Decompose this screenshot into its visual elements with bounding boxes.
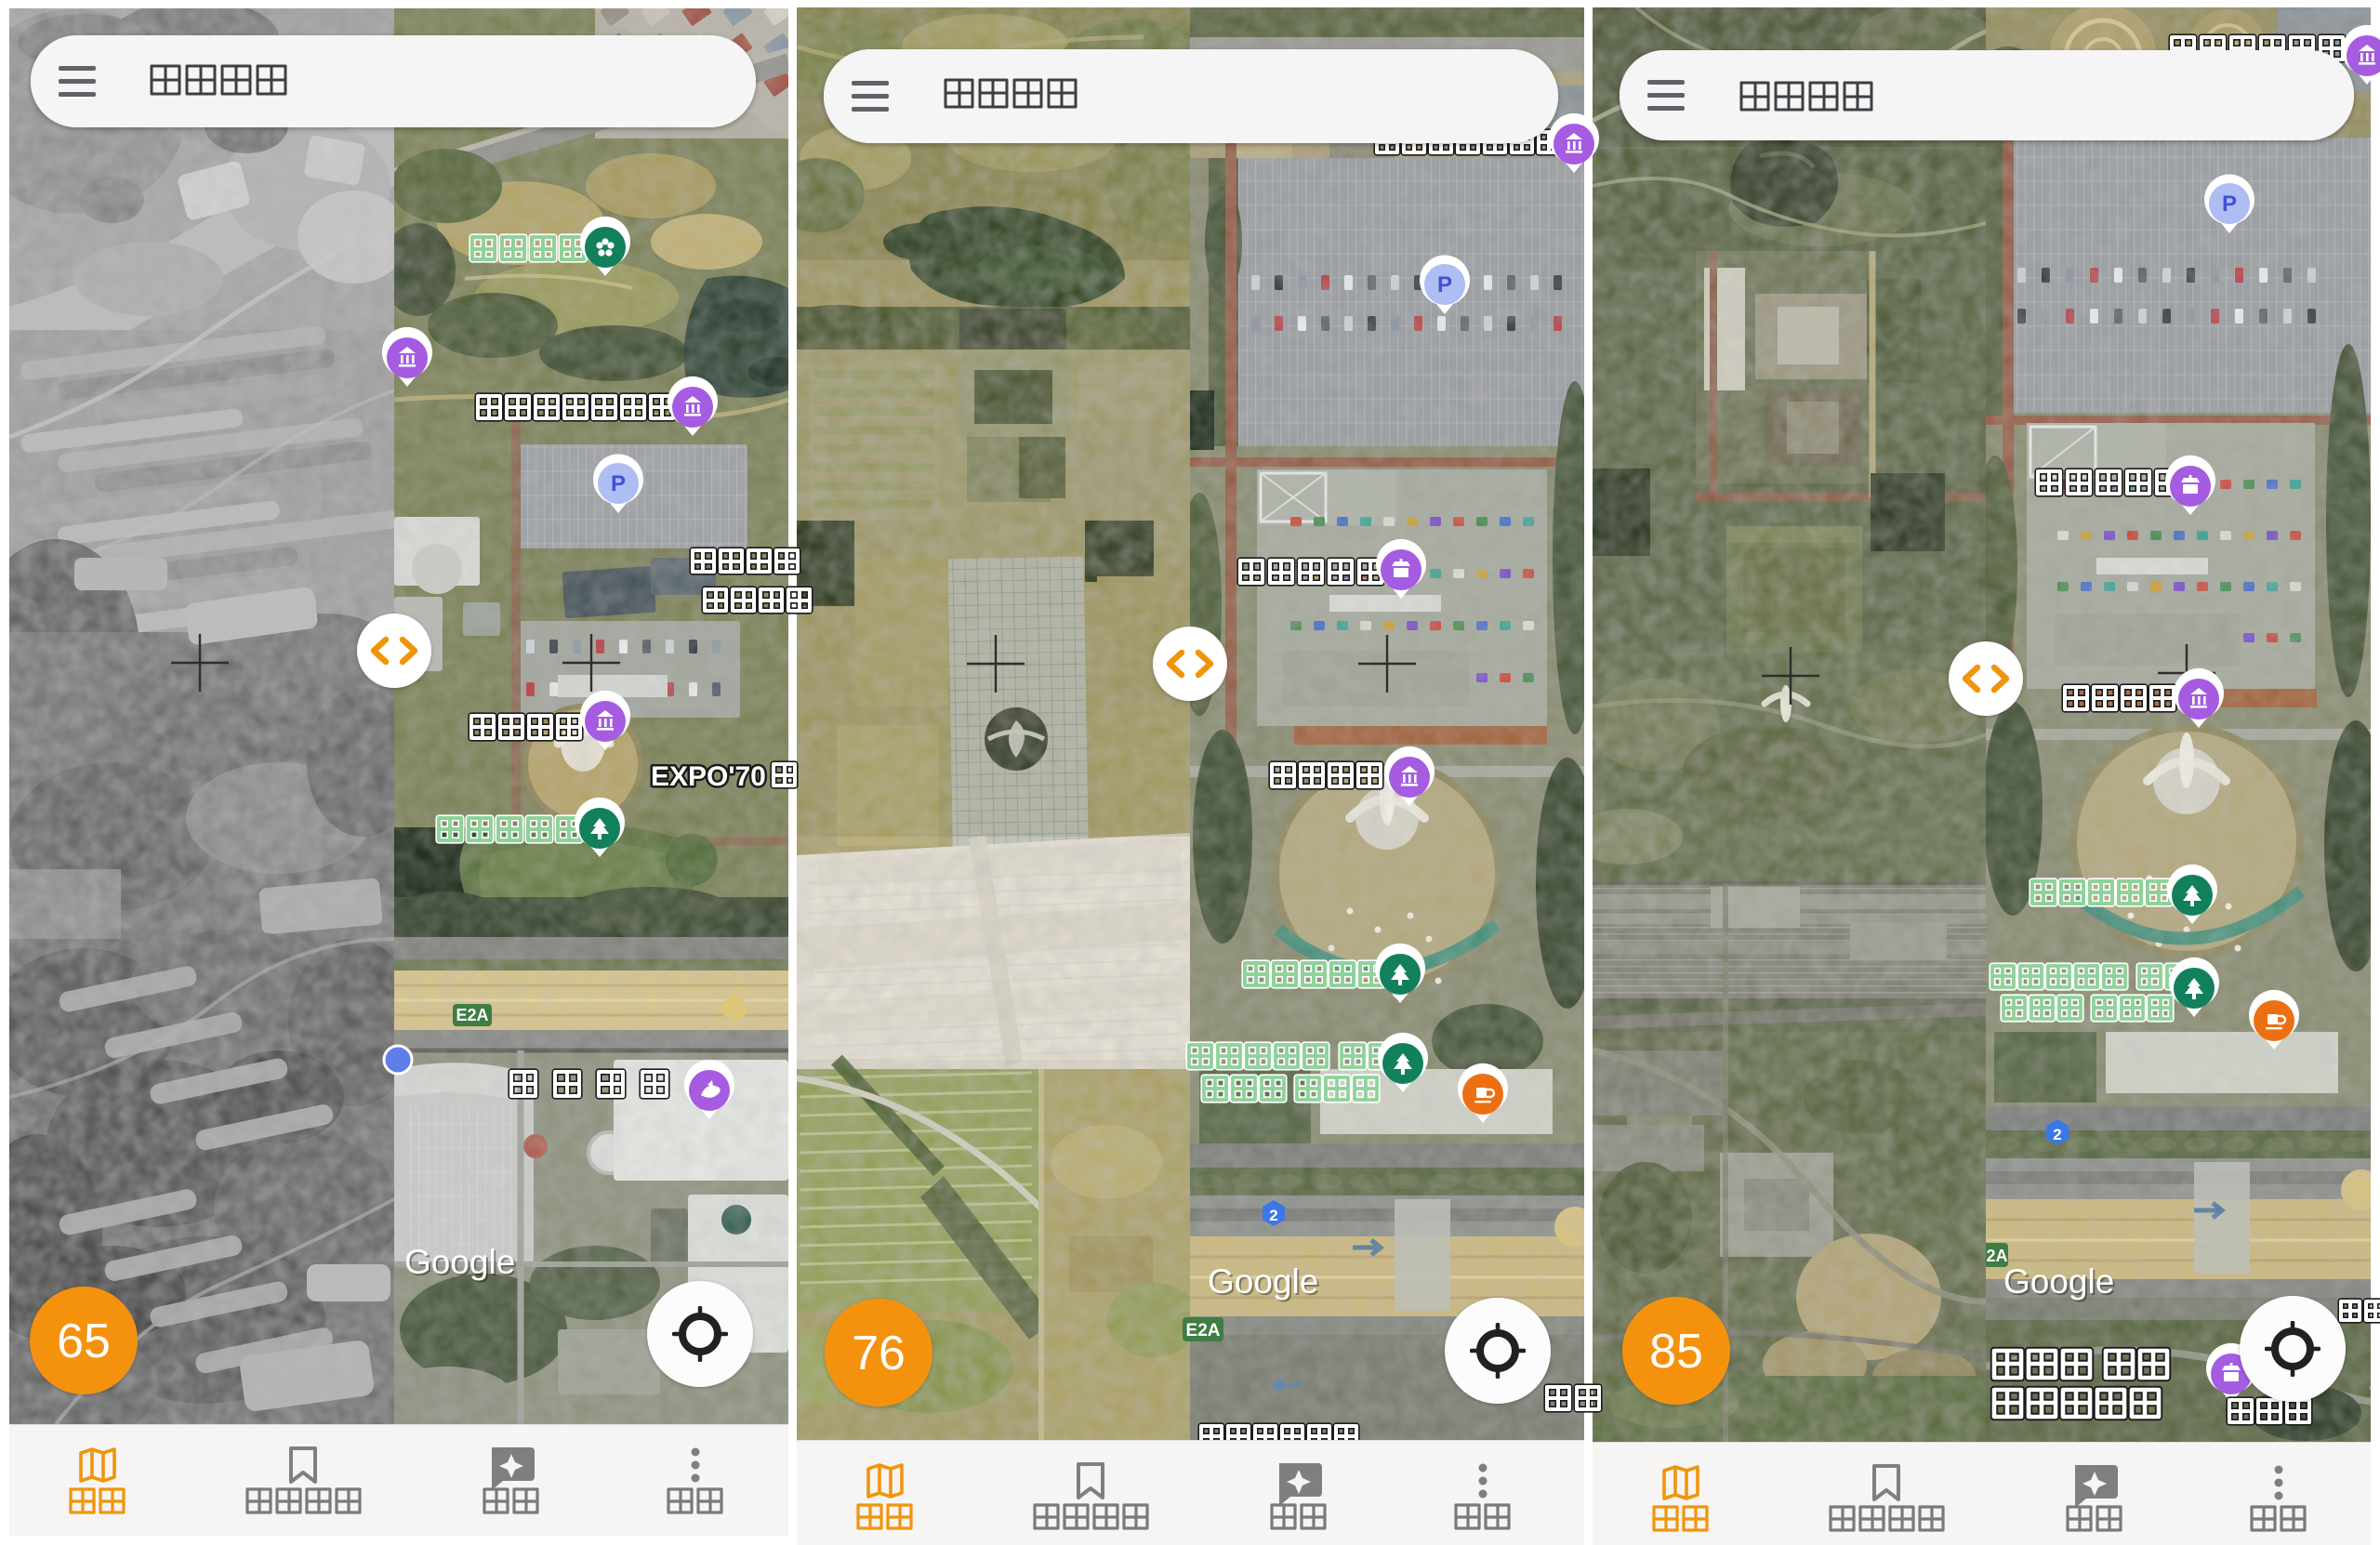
svg-text:2: 2 <box>2053 1126 2061 1143</box>
svg-text:P: P <box>2222 191 2237 217</box>
svg-text:2: 2 <box>1269 1207 1277 1224</box>
svg-text:Google: Google <box>2003 1262 2114 1301</box>
svg-text:P: P <box>611 471 626 496</box>
svg-text:65: 65 <box>57 1314 111 1368</box>
svg-text:Google: Google <box>1208 1262 1318 1301</box>
svg-text:Google: Google <box>404 1243 515 1281</box>
svg-text:E2A: E2A <box>456 1006 488 1024</box>
svg-text:EXPO'70: EXPO'70 <box>651 761 766 792</box>
svg-text:E2A: E2A <box>1186 1321 1221 1340</box>
svg-text:P: P <box>1437 272 1452 297</box>
svg-text:76: 76 <box>852 1327 906 1380</box>
svg-text:85: 85 <box>1649 1325 1703 1379</box>
